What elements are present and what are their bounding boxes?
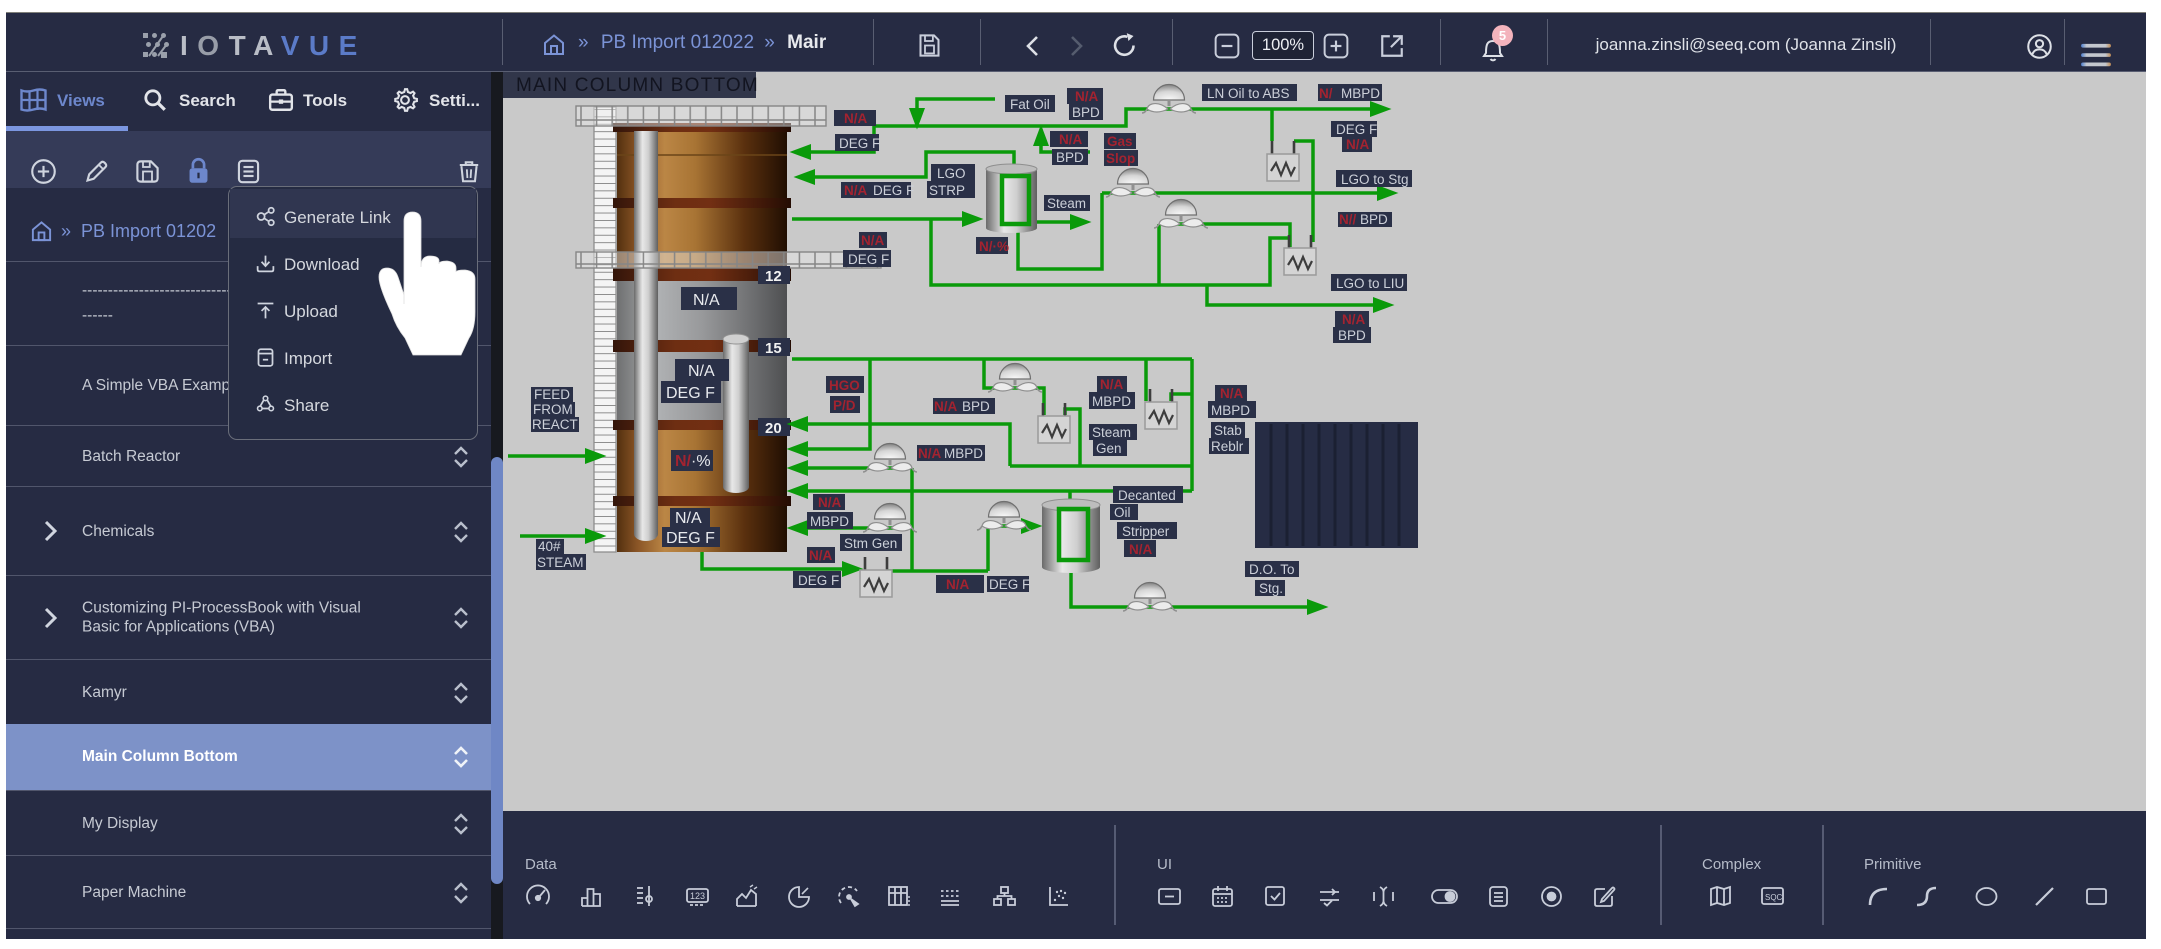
svg-text:N/A: N/A xyxy=(1100,377,1124,392)
svg-text:Stg.: Stg. xyxy=(1259,581,1283,596)
svg-text:SQC: SQC xyxy=(1765,893,1783,902)
svg-text:BPD: BPD xyxy=(1056,150,1084,165)
svg-text:N/A: N/A xyxy=(918,446,942,461)
svg-text:N/A: N/A xyxy=(861,233,885,248)
svg-text:MBPD: MBPD xyxy=(944,446,983,461)
svg-text:N/: N/ xyxy=(1319,86,1333,101)
svg-text:40#: 40# xyxy=(538,539,561,554)
svg-text:N/·%: N/·% xyxy=(675,453,711,470)
svg-text:20: 20 xyxy=(765,420,782,437)
svg-text:Steam: Steam xyxy=(1092,425,1131,440)
svg-text:Data: Data xyxy=(525,856,557,873)
svg-text:MBPD: MBPD xyxy=(1092,394,1131,409)
svg-text:MBPD: MBPD xyxy=(1341,86,1380,101)
svg-text:N/A: N/A xyxy=(844,111,868,126)
svg-text:BPD: BPD xyxy=(1360,212,1388,227)
svg-text:Complex: Complex xyxy=(1702,856,1762,873)
svg-text:12: 12 xyxy=(765,268,782,285)
svg-text:N/A: N/A xyxy=(1059,132,1083,147)
svg-text:Stm Gen: Stm Gen xyxy=(844,536,897,551)
svg-text:DEG F: DEG F xyxy=(666,530,715,547)
svg-text:MAIN COLUMN BOTTOM: MAIN COLUMN BOTTOM xyxy=(516,75,759,96)
svg-text:DEG F: DEG F xyxy=(989,577,1030,592)
svg-text:MBPD: MBPD xyxy=(1211,403,1250,418)
svg-text:Decanted: Decanted xyxy=(1118,488,1176,503)
svg-text:P/D: P/D xyxy=(833,398,856,413)
svg-text:Reblr: Reblr xyxy=(1211,439,1244,454)
svg-text:Slop: Slop xyxy=(1106,151,1135,166)
svg-text:N/A: N/A xyxy=(934,399,958,414)
svg-text:DEG F: DEG F xyxy=(873,183,914,198)
svg-text:N/·%: N/·% xyxy=(979,239,1009,254)
svg-text:BPD: BPD xyxy=(1338,328,1366,343)
svg-text:N/A: N/A xyxy=(1342,312,1366,327)
svg-text:Stab: Stab xyxy=(1214,423,1242,438)
svg-text:LGO to Stg: LGO to Stg xyxy=(1341,172,1409,187)
svg-text:N/A: N/A xyxy=(946,577,970,592)
svg-text:N/A: N/A xyxy=(818,495,842,510)
svg-text:LGO: LGO xyxy=(937,166,966,181)
svg-text:Gen: Gen xyxy=(1096,441,1122,456)
svg-text:STEAM: STEAM xyxy=(537,555,584,570)
svg-text:FEED: FEED xyxy=(534,387,570,402)
svg-text:N/A: N/A xyxy=(1075,89,1099,104)
svg-text:N/A: N/A xyxy=(675,510,702,527)
svg-text:123: 123 xyxy=(690,891,705,901)
svg-text:DEG F: DEG F xyxy=(666,385,715,402)
svg-text:N/A: N/A xyxy=(1220,386,1244,401)
svg-text:REACT: REACT xyxy=(532,417,578,432)
svg-text:N/A: N/A xyxy=(1346,137,1370,152)
svg-text:FROM: FROM xyxy=(533,402,573,417)
svg-text:Oil: Oil xyxy=(1114,505,1131,520)
svg-text:Steam: Steam xyxy=(1047,196,1086,211)
svg-text:N/A: N/A xyxy=(844,183,868,198)
svg-text:N/A: N/A xyxy=(1129,542,1153,557)
svg-text:DEG F: DEG F xyxy=(848,252,889,267)
svg-text:LN Oil to ABS: LN Oil to ABS xyxy=(1207,86,1290,101)
svg-text:HGO: HGO xyxy=(829,378,860,393)
svg-text:DEG F: DEG F xyxy=(839,136,880,151)
svg-text:Stripper: Stripper xyxy=(1122,524,1170,539)
svg-text:Primitive: Primitive xyxy=(1864,856,1922,873)
svg-text:N/A: N/A xyxy=(809,548,833,563)
svg-text:BPD: BPD xyxy=(1072,105,1100,120)
svg-text:15: 15 xyxy=(765,340,782,357)
svg-text:DEG F: DEG F xyxy=(1336,122,1377,137)
svg-text:N/A: N/A xyxy=(688,363,715,380)
svg-text:Fat Oil: Fat Oil xyxy=(1010,97,1050,112)
svg-text:MBPD: MBPD xyxy=(810,514,849,529)
svg-text:BPD: BPD xyxy=(962,399,990,414)
svg-text:N//: N// xyxy=(1339,212,1357,227)
svg-text:N/A: N/A xyxy=(693,292,720,309)
svg-text:UI: UI xyxy=(1157,856,1172,873)
svg-text:STRP: STRP xyxy=(929,183,965,198)
svg-text:LGO to LIU: LGO to LIU xyxy=(1336,276,1404,291)
svg-text:D.O. To: D.O. To xyxy=(1249,562,1295,577)
svg-text:DEG F: DEG F xyxy=(798,573,839,588)
svg-text:Gas: Gas xyxy=(1107,134,1133,149)
